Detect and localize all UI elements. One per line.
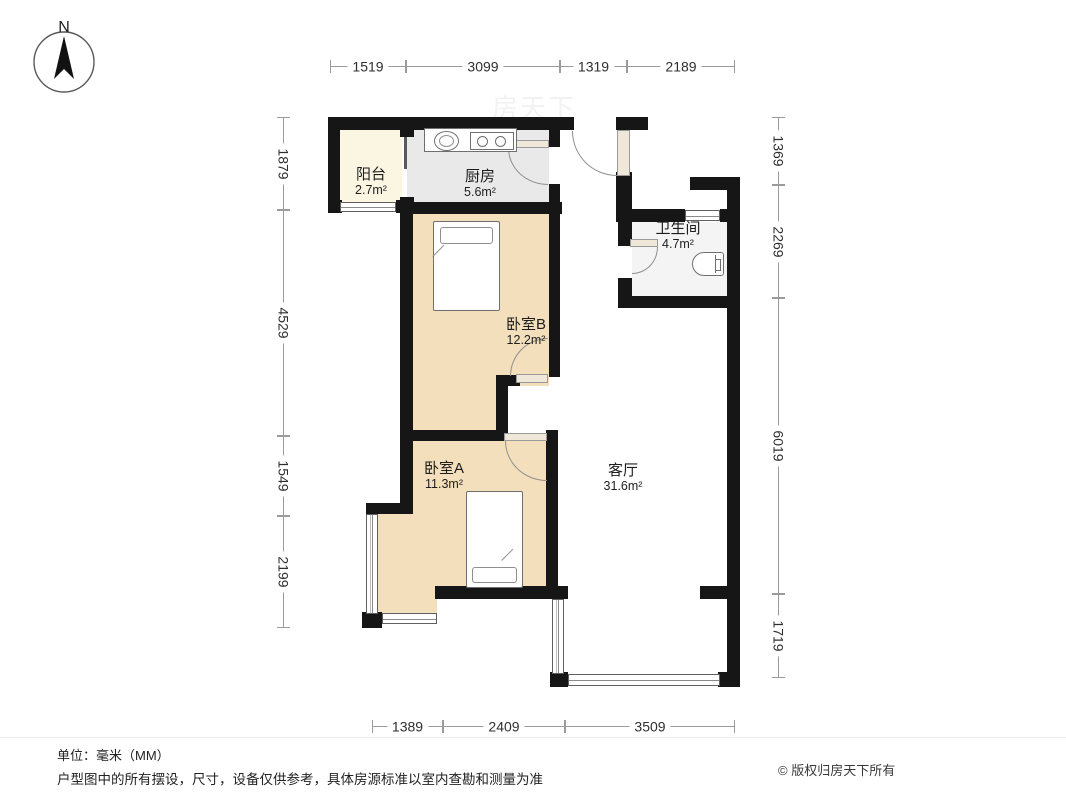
stove-icon	[470, 132, 514, 150]
bedroom-a-door-leaf	[504, 433, 547, 441]
wall	[546, 430, 558, 441]
room-name: 卧室A	[408, 460, 480, 477]
dim-segment: 1319	[560, 66, 627, 67]
dim-value: 1719	[770, 615, 786, 656]
room-name: 卫生间	[638, 220, 718, 237]
room-label-kitchen: 厨房 5.6m²	[445, 168, 515, 200]
dim-segment: 1389	[372, 726, 443, 727]
footer-divider	[0, 737, 1066, 738]
footer-copyright: © 版权归房天下所有	[778, 760, 895, 779]
pillow-icon	[440, 227, 493, 244]
dim-value: 3099	[462, 58, 503, 74]
wall	[328, 117, 340, 213]
dim-segment: 1719	[778, 594, 779, 678]
dim-value: 1879	[275, 143, 291, 184]
bedroom-a-bay-window-bottom	[382, 613, 437, 624]
bed-bedroom-a	[466, 491, 523, 588]
dim-segment: 2409	[443, 726, 565, 727]
living-bay-window-bottom	[568, 674, 720, 686]
entry-door-leaf	[617, 130, 630, 176]
dim-value: 2189	[660, 58, 701, 74]
dim-segment: 6019	[778, 298, 779, 594]
wall	[400, 117, 414, 137]
dim-value: 1519	[347, 58, 388, 74]
dim-segment: 1519	[330, 66, 406, 67]
living-bay-window-left	[552, 599, 564, 674]
burner-icon	[477, 136, 488, 147]
dim-value: 1389	[387, 718, 428, 734]
sink-basin-icon	[439, 135, 454, 147]
toilet-button	[715, 259, 721, 271]
dim-segment: 1369	[778, 117, 779, 185]
floorplan-canvas: N 房天下 房天下 房天下	[0, 0, 1066, 800]
room-label-balcony: 阳台 2.7m²	[336, 166, 406, 198]
wall	[400, 430, 506, 441]
burner-icon	[495, 136, 506, 147]
bedroom-a-bay-window-left	[366, 514, 378, 614]
dim-segment: 2189	[627, 66, 735, 67]
room-area: 4.7m²	[638, 237, 718, 251]
dim-segment: 1879	[283, 117, 284, 210]
dim-segment: 4529	[283, 210, 284, 436]
dim-segment: 3099	[406, 66, 560, 67]
wall	[366, 503, 413, 514]
wall	[720, 209, 740, 222]
room-name: 客厅	[585, 462, 661, 479]
bed-bedroom-b	[433, 221, 500, 311]
balcony-window	[340, 202, 396, 212]
compass-north-label: N	[58, 19, 70, 36]
wall	[616, 117, 648, 130]
wall	[362, 612, 382, 628]
dim-value: 2199	[275, 551, 291, 592]
wall	[690, 177, 740, 190]
wall	[700, 586, 728, 599]
compass: N	[26, 12, 102, 98]
dim-value: 6019	[770, 425, 786, 466]
dim-value: 3509	[629, 718, 670, 734]
room-label-living: 客厅 31.6m²	[585, 462, 661, 494]
footer-disclaimer: 户型图中的所有摆设，尺寸，设备仅供参考，具体房源标准以室内查勘和测量为准	[57, 768, 543, 788]
dim-segment: 2199	[283, 516, 284, 628]
wall	[546, 441, 558, 591]
blanket-fold	[432, 245, 455, 268]
room-name: 卧室B	[490, 316, 562, 333]
room-label-bathroom: 卫生间 4.7m²	[638, 220, 718, 252]
dim-value: 4529	[275, 302, 291, 343]
room-area: 11.3m²	[408, 477, 480, 491]
wall	[618, 296, 740, 308]
dim-segment: 2269	[778, 185, 779, 298]
entry-door-arc	[572, 131, 617, 176]
wall	[727, 183, 740, 678]
room-area: 5.6m²	[445, 185, 515, 199]
footer-unit-note: 单位：毫米（MM）	[57, 745, 170, 764]
dim-value: 2409	[483, 718, 524, 734]
dim-segment: 3509	[565, 726, 735, 727]
dim-value: 1319	[573, 58, 614, 74]
room-area: 2.7m²	[336, 183, 406, 197]
room-name: 厨房	[445, 168, 515, 185]
wall	[400, 202, 562, 214]
room-area: 31.6m²	[585, 479, 661, 493]
toilet-icon	[692, 252, 724, 276]
room-label-bedroom-a: 卧室A 11.3m²	[408, 460, 480, 492]
dim-value: 1369	[770, 130, 786, 171]
room-area: 12.2m²	[490, 333, 562, 347]
wall	[404, 137, 407, 169]
north-arrow-icon	[54, 36, 74, 79]
wall	[549, 184, 560, 204]
wall	[550, 672, 568, 687]
wall	[549, 214, 560, 377]
dim-value: 1549	[275, 455, 291, 496]
dim-value: 2269	[770, 221, 786, 262]
room-name: 阳台	[336, 166, 406, 183]
wall	[549, 130, 560, 147]
wall	[400, 214, 413, 441]
bedroom-a-bay-floor	[378, 514, 437, 613]
kitchen-counter	[424, 128, 517, 152]
room-label-bedroom-b: 卧室B 12.2m²	[490, 316, 562, 348]
dim-segment: 1549	[283, 436, 284, 516]
